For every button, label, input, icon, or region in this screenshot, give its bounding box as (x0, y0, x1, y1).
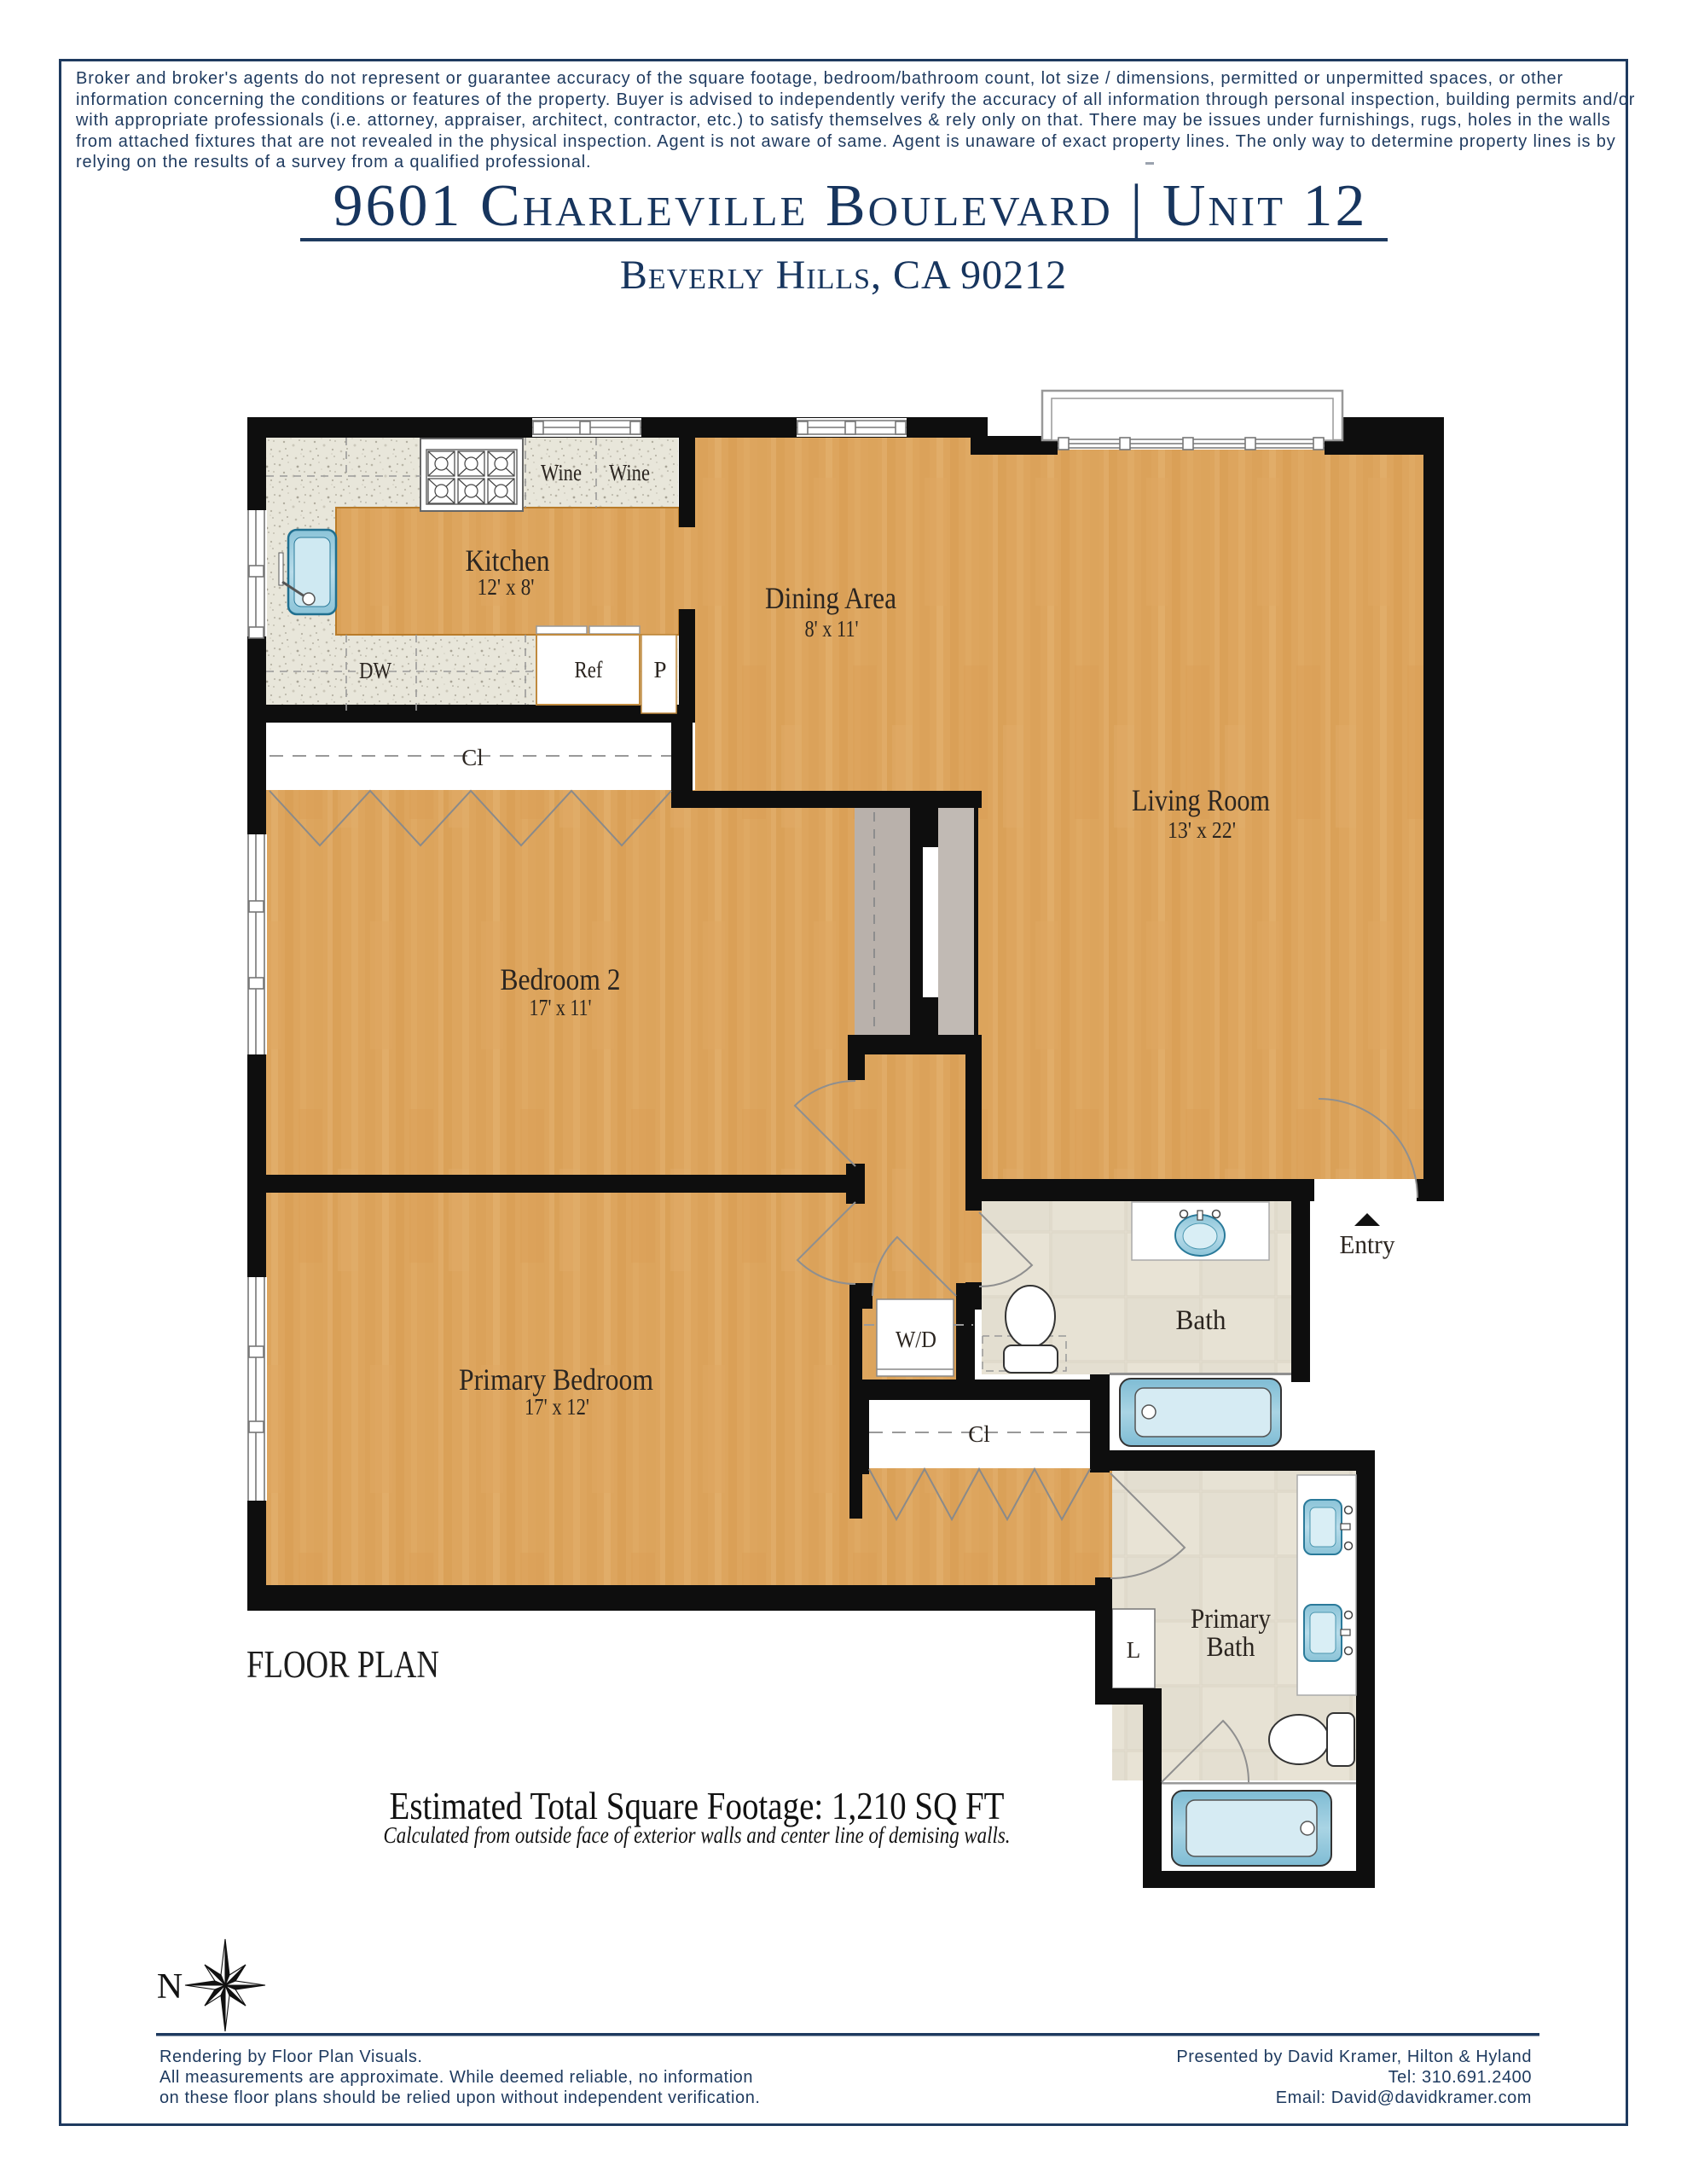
svg-text:8' x 11': 8' x 11' (805, 616, 859, 642)
svg-text:Primary Bedroom: Primary Bedroom (459, 1362, 653, 1397)
svg-text:FLOOR PLAN: FLOOR PLAN (246, 1643, 439, 1686)
svg-text:Kitchen: Kitchen (466, 543, 550, 578)
svg-text:Bath: Bath (1176, 1305, 1226, 1336)
svg-text:Wine: Wine (609, 460, 650, 485)
svg-text:Living Room: Living Room (1132, 783, 1270, 817)
svg-text:Entry: Entry (1340, 1229, 1395, 1259)
svg-text:DW: DW (359, 658, 391, 683)
svg-text:Wine: Wine (541, 460, 582, 485)
svg-text:Cl: Cl (461, 745, 484, 770)
svg-text:W/D: W/D (896, 1327, 936, 1352)
svg-text:Dining Area: Dining Area (765, 581, 896, 615)
svg-text:Bedroom 2: Bedroom 2 (501, 962, 621, 996)
svg-text:Calculated from outside face o: Calculated from outside face of exterior… (384, 1822, 1011, 1848)
svg-text:P: P (653, 657, 666, 682)
svg-text:Primary: Primary (1191, 1604, 1271, 1635)
svg-text:13' x 22': 13' x 22' (1168, 817, 1236, 843)
svg-text:Bath: Bath (1207, 1632, 1255, 1663)
svg-text:Cl: Cl (968, 1421, 990, 1447)
svg-text:Ref: Ref (575, 657, 603, 682)
svg-text:N: N (157, 1967, 183, 2007)
svg-text:17' x 12': 17' x 12' (525, 1394, 589, 1420)
svg-text:L: L (1127, 1637, 1141, 1663)
svg-text:Estimated Total Square Footage: Estimated Total Square Footage: 1,210 SQ… (390, 1784, 1005, 1827)
svg-text:12' x 8': 12' x 8' (478, 574, 535, 600)
svg-text:17' x 11': 17' x 11' (530, 995, 592, 1020)
